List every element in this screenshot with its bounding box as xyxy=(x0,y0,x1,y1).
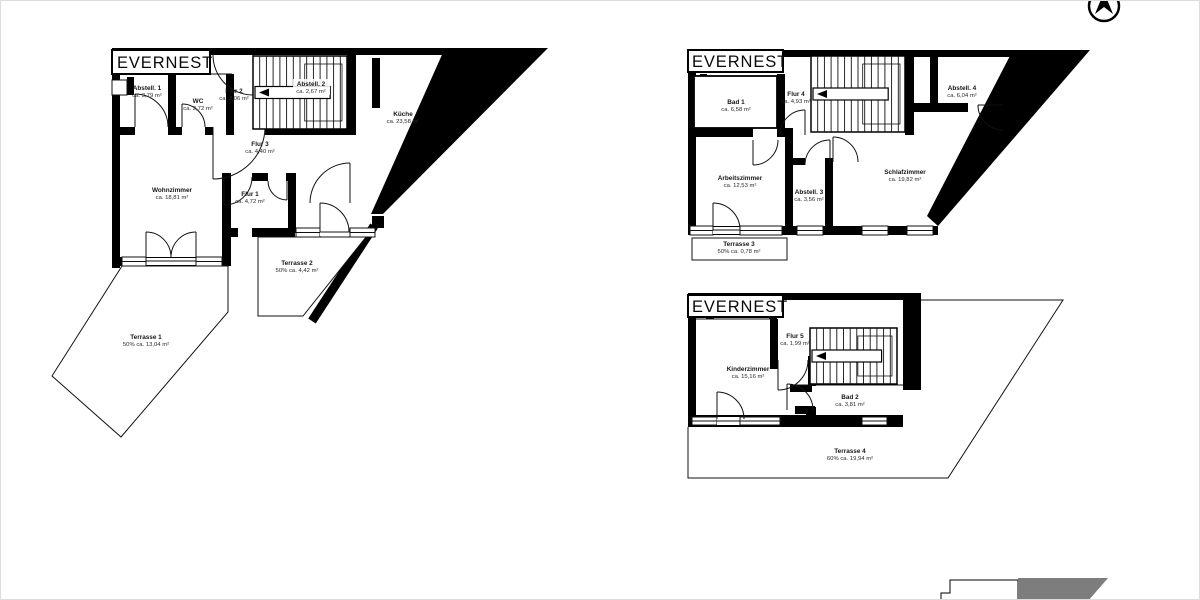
room-area-bad-1: ca. 6,58 m² xyxy=(721,107,751,113)
floor-plan-sheet: EVERNEST Abstell. 1 ca. 3,79 m² WC ca. 2… xyxy=(0,0,1200,600)
room-label-bad-2: Bad 2 xyxy=(841,394,859,401)
terrace-2-outline xyxy=(258,237,366,316)
room-area-terrasse-3: 50% ca. 0,78 m² xyxy=(718,249,761,255)
diagonal-wall xyxy=(371,48,548,214)
room-area-wc: ca. 2,72 m² xyxy=(183,106,213,112)
room-label-kueche: Küche xyxy=(393,111,413,118)
room-label-flur-3: Flur 3 xyxy=(251,141,269,148)
room-label-flur-5: Flur 5 xyxy=(786,333,804,340)
room-area-abstell-4: ca. 6,04 m² xyxy=(947,93,977,99)
room-area-bad-2: ca. 3,81 m² xyxy=(835,402,865,408)
room-area-schlafzimmer: ca. 19,82 m² xyxy=(889,177,922,183)
room-area-abstell-1: ca. 3,79 m² xyxy=(132,93,162,99)
room-label-terrasse-1: Terrasse 1 xyxy=(130,334,162,341)
terrace-1-outline xyxy=(52,266,228,437)
room-area-flur-2: ca. 3,06 m² xyxy=(219,96,249,102)
floor-plan-3: EVERNEST Flur 5 ca. 1,99 m² Kinderzimmer… xyxy=(688,293,1063,478)
plan-2-title: EVERNEST xyxy=(692,53,788,71)
plan-3-title: EVERNEST xyxy=(692,298,788,316)
room-label-wc: WC xyxy=(193,98,204,105)
room-label-flur-4: Flur 4 xyxy=(787,91,805,98)
room-label-wohnzimmer: Wohnzimmer xyxy=(152,187,193,194)
room-label-abstell-3: Abstell. 3 xyxy=(795,189,824,196)
room-area-kueche: ca. 23,58 m² xyxy=(387,119,420,125)
site-key-plan-icon xyxy=(941,578,1108,600)
room-label-terrasse-4: Terrasse 4 xyxy=(834,448,866,455)
room-label-flur-2: Flur 2 xyxy=(225,88,243,95)
room-label-flur-1: Flur 1 xyxy=(241,191,259,198)
room-label-schlafzimmer: Schlafzimmer xyxy=(884,169,926,176)
room-area-wohnzimmer: ca. 18,81 m² xyxy=(156,195,189,201)
room-area-flur-3: ca. 4,40 m² xyxy=(245,149,275,155)
room-label-terrasse-2: Terrasse 2 xyxy=(281,260,313,267)
room-area-kinderzimmer: ca. 15,16 m² xyxy=(732,374,765,380)
room-area-flur-4: ca. 4,93 m² xyxy=(781,99,811,105)
plan-1-title: EVERNEST xyxy=(117,54,213,72)
terrace-4-outline xyxy=(688,300,1063,478)
diagonal-wall xyxy=(927,50,1090,226)
room-area-arbeitszimmer: ca. 12,53 m² xyxy=(724,183,757,189)
room-label-arbeitszimmer: Arbeitszimmer xyxy=(718,175,763,182)
room-area-terrasse-4: 60% ca. 19,94 m² xyxy=(827,456,873,462)
floor-plan-2: EVERNEST Bad 1 ca. 6,58 m² Flur 4 ca. 4,… xyxy=(688,50,1090,260)
room-label-abstell-1: Abstell. 1 xyxy=(133,85,162,92)
room-area-terrasse-2: 50% ca. 4,42 m² xyxy=(276,268,319,274)
room-label-abstell-2: Abstell. 2 xyxy=(297,81,326,88)
floor-plan-1: EVERNEST Abstell. 1 ca. 3,79 m² WC ca. 2… xyxy=(52,48,548,437)
north-arrow-icon xyxy=(1089,0,1119,21)
room-area-flur-1: ca. 4,72 m² xyxy=(235,199,265,205)
room-label-terrasse-3: Terrasse 3 xyxy=(723,241,755,248)
room-label-abstell-4: Abstell. 4 xyxy=(948,85,977,92)
staircase xyxy=(811,56,905,132)
staircase xyxy=(810,328,897,384)
room-area-abstell-3: ca. 3,56 m² xyxy=(794,197,824,203)
room-label-bad-1: Bad 1 xyxy=(727,99,745,106)
room-area-terrasse-1: 50% ca. 13,04 m² xyxy=(123,342,169,348)
room-area-flur-5: ca. 1,99 m² xyxy=(780,341,810,347)
room-label-kinderzimmer: Kinderzimmer xyxy=(727,366,770,373)
room-area-abstell-2: ca. 2,67 m² xyxy=(296,89,326,95)
